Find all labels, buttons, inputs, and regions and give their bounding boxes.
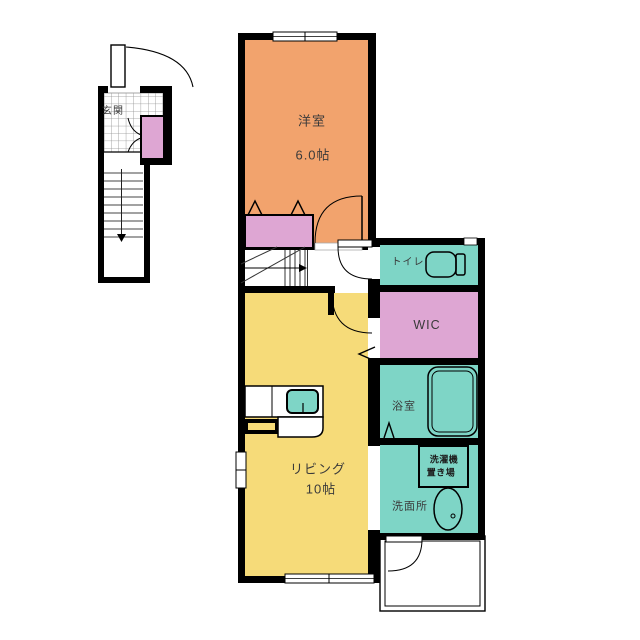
toilet-room bbox=[380, 245, 478, 285]
kitchen-sink-icon bbox=[287, 390, 318, 413]
washroom-door-opening bbox=[368, 446, 380, 530]
western-room-top-window bbox=[273, 32, 337, 41]
living-door-opening bbox=[335, 286, 368, 293]
stairs-down bbox=[104, 169, 143, 237]
wic-room bbox=[380, 292, 478, 358]
washroom bbox=[380, 445, 478, 533]
western-room-closet bbox=[245, 215, 313, 248]
wic-door-opening bbox=[368, 318, 380, 358]
balcony bbox=[380, 536, 485, 611]
bath-room bbox=[380, 365, 478, 438]
entrance-structure bbox=[98, 45, 193, 283]
floor-plan-drawing bbox=[0, 0, 640, 640]
kitchen-counter bbox=[245, 386, 323, 437]
entrance-cabinet bbox=[141, 116, 164, 159]
floor-plan-canvas: 玄関 洋室 6.0帖 トイレ WIC 浴室 洗濯機 置き場 洗面所 リビング 1… bbox=[0, 0, 640, 640]
living-left-window bbox=[236, 452, 246, 488]
living-bottom-window bbox=[285, 574, 374, 583]
toilet-window bbox=[464, 238, 477, 245]
room-fills bbox=[242, 40, 478, 576]
toilet-door-opening bbox=[368, 247, 380, 279]
stairs-down-arrow-icon bbox=[117, 234, 126, 242]
entrance-door-icon bbox=[111, 45, 193, 87]
